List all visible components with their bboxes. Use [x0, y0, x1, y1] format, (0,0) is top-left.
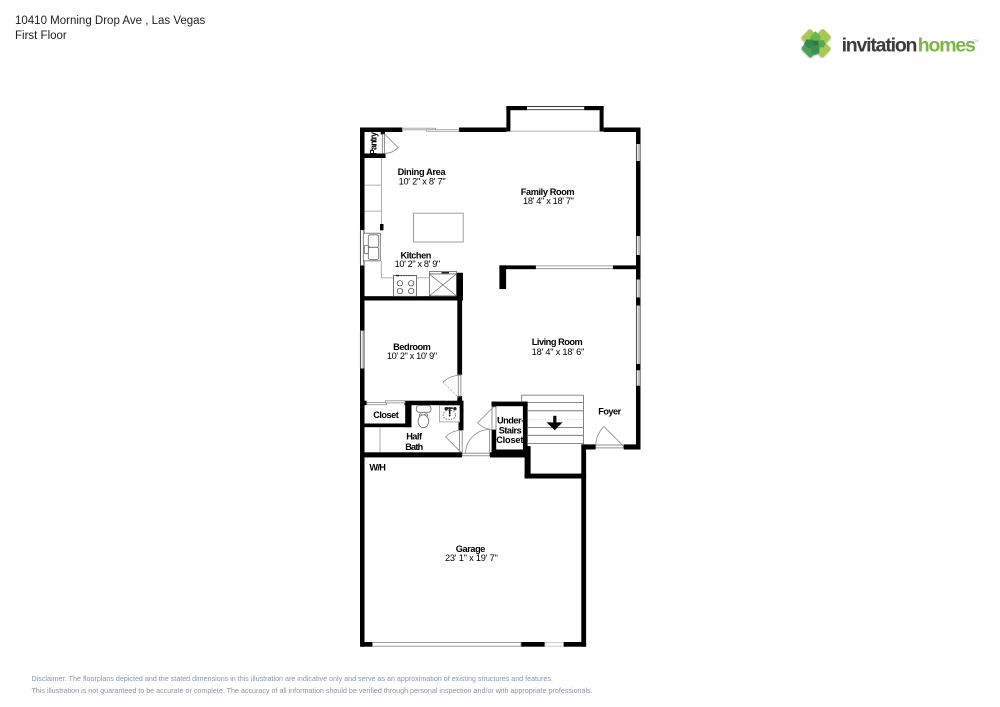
svg-text:18' 4" x 18' 7": 18' 4" x 18' 7": [523, 196, 574, 206]
svg-text:10' 2" x 8' 9": 10' 2" x 8' 9": [395, 259, 441, 269]
svg-text:Dining Area: Dining Area: [398, 167, 447, 177]
svg-text:W/H: W/H: [369, 462, 386, 472]
svg-text:23' 1" x 19' 7": 23' 1" x 19' 7": [445, 553, 498, 563]
svg-text:Living Room: Living Room: [532, 337, 583, 347]
svg-text:Pantry: Pantry: [369, 132, 379, 155]
svg-text:Bath: Bath: [405, 442, 423, 452]
svg-text:Under-: Under-: [497, 416, 524, 426]
svg-text:Foyer: Foyer: [598, 406, 621, 416]
svg-text:Closet: Closet: [496, 435, 523, 445]
svg-text:Half: Half: [406, 431, 423, 441]
svg-text:18' 4" x 18' 6": 18' 4" x 18' 6": [532, 347, 585, 357]
svg-text:10' 2" x 10' 9": 10' 2" x 10' 9": [387, 351, 437, 361]
svg-text:10' 2" x 8' 7": 10' 2" x 8' 7": [399, 177, 446, 187]
svg-text:Closet: Closet: [373, 410, 399, 420]
